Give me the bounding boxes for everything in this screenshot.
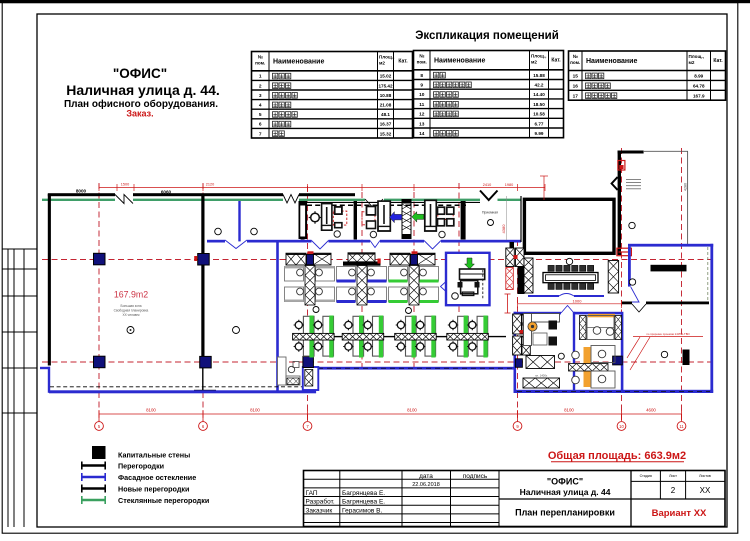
- svg-text:15.02: 15.02: [380, 74, 392, 79]
- svg-text:8100: 8100: [250, 408, 260, 413]
- svg-text:Лист: Лист: [669, 474, 677, 478]
- svg-text:Кат.: Кат.: [551, 58, 561, 64]
- svg-text:"ОФИС": "ОФИС": [113, 66, 167, 81]
- svg-text:Наименование: Наименование: [273, 59, 324, 66]
- svg-text:1500: 1500: [121, 183, 129, 187]
- svg-text:Герасимов В.: Герасимов В.: [342, 507, 382, 514]
- svg-text:42.2: 42.2: [535, 82, 544, 87]
- svg-text:пом.: пом.: [417, 60, 427, 65]
- svg-text:15: 15: [573, 74, 579, 80]
- svg-text:пом.: пом.: [255, 61, 265, 66]
- svg-text:22.06.2018: 22.06.2018: [412, 482, 440, 488]
- svg-text:Капитальные стены: Капитальные стены: [118, 451, 190, 460]
- svg-text:3: 3: [259, 93, 262, 99]
- svg-text:№: №: [258, 55, 263, 60]
- svg-text:1: 1: [259, 74, 262, 80]
- svg-text:167.9m2: 167.9m2: [114, 290, 148, 300]
- svg-text:Вариант ХХ: Вариант ХХ: [652, 508, 707, 519]
- svg-text:2410: 2410: [483, 183, 491, 187]
- svg-text:по прорезке проемов 14УРА-ТВО: по прорезке проемов 14УРА-ТВО: [646, 332, 690, 336]
- svg-text:Приемная: Приемная: [482, 211, 498, 215]
- svg-text:9.99: 9.99: [535, 131, 544, 136]
- svg-text:Стеклянные перегородки: Стеклянные перегородки: [118, 496, 209, 505]
- svg-text:14.40: 14.40: [533, 92, 545, 97]
- svg-text:21.08: 21.08: [380, 103, 392, 108]
- svg-text:подпись: подпись: [463, 473, 488, 480]
- svg-text:8.99: 8.99: [694, 74, 703, 79]
- svg-text:10.58: 10.58: [533, 112, 545, 117]
- svg-text:4600: 4600: [646, 408, 656, 413]
- svg-text:13: 13: [419, 121, 425, 127]
- svg-text:11: 11: [419, 102, 424, 108]
- svg-text:Кат.: Кат.: [713, 58, 723, 64]
- svg-text:16.37: 16.37: [380, 122, 392, 127]
- svg-text:2120: 2120: [206, 183, 214, 187]
- svg-text:11: 11: [679, 424, 684, 429]
- svg-text:9: 9: [420, 82, 423, 88]
- svg-text:План перепланировки: План перепланировки: [515, 508, 615, 518]
- svg-text:6060: 6060: [161, 190, 172, 195]
- svg-text:ХХ человек: ХХ человек: [123, 313, 141, 317]
- svg-text:8100: 8100: [407, 408, 417, 413]
- svg-text:10.88: 10.88: [380, 93, 392, 98]
- svg-text:10: 10: [619, 424, 624, 429]
- svg-text:Заказ.: Заказ.: [126, 109, 153, 119]
- svg-text:1000: 1000: [573, 299, 583, 304]
- svg-text:15.32: 15.32: [380, 131, 392, 136]
- svg-text:Наименование: Наименование: [434, 58, 485, 65]
- svg-text:18.50: 18.50: [533, 102, 545, 107]
- svg-text:"ОФИС": "ОФИС": [547, 477, 583, 487]
- svg-text:Фасадное остекление: Фасадное остекление: [118, 473, 196, 482]
- svg-text:14: 14: [419, 131, 425, 137]
- svg-text:Заказчик: Заказчик: [306, 507, 333, 514]
- svg-text:ХХ: ХХ: [700, 486, 711, 495]
- svg-text:Наличная улица д. 44.: Наличная улица д. 44.: [66, 82, 220, 98]
- svg-text:Наименование: Наименование: [586, 58, 637, 65]
- svg-text:Перегородки: Перегородки: [118, 462, 164, 471]
- svg-text:Площ.,: Площ.,: [379, 55, 394, 60]
- svg-text:8100: 8100: [146, 408, 156, 413]
- svg-text:Листов: Листов: [699, 474, 711, 478]
- svg-text:48.1: 48.1: [381, 112, 390, 117]
- svg-text:2: 2: [671, 486, 676, 495]
- svg-text:2: 2: [259, 83, 262, 89]
- svg-text:4280: 4280: [684, 183, 688, 191]
- svg-text:Багрянцева Е.: Багрянцева Е.: [342, 490, 385, 497]
- svg-text:16: 16: [573, 84, 579, 90]
- svg-text:Новые перегородки: Новые перегородки: [118, 485, 189, 494]
- svg-text:7: 7: [259, 131, 262, 137]
- svg-text:167.9: 167.9: [693, 93, 705, 98]
- svg-text:8000: 8000: [76, 189, 87, 194]
- svg-text:6.77: 6.77: [535, 121, 544, 126]
- svg-text:Наличная улица д. 44: Наличная улица д. 44: [520, 487, 611, 497]
- svg-text:Багрянцева Е.: Багрянцева Е.: [342, 499, 385, 506]
- svg-text:175.42: 175.42: [378, 83, 392, 88]
- svg-text:4380: 4380: [501, 224, 506, 234]
- svg-text:пом.: пом.: [570, 60, 580, 65]
- svg-text:пл. 1400х: пл. 1400х: [535, 374, 548, 378]
- svg-text:дата: дата: [419, 473, 433, 480]
- svg-text:№: №: [419, 54, 424, 59]
- svg-text:м2: м2: [531, 60, 537, 65]
- svg-text:8: 8: [420, 73, 423, 79]
- svg-text:6: 6: [259, 122, 262, 128]
- svg-text:ГАП: ГАП: [306, 490, 318, 497]
- svg-text:5: 5: [259, 112, 262, 118]
- svg-text:Экспликация помещений: Экспликация помещений: [415, 30, 559, 42]
- svg-text:Площ.,: Площ.,: [531, 54, 546, 59]
- svg-text:Большая зона: Большая зона: [121, 304, 142, 308]
- svg-text:Площ.,: Площ.,: [689, 54, 704, 59]
- svg-text:12: 12: [419, 112, 425, 118]
- svg-text:15.88: 15.88: [533, 73, 545, 78]
- svg-text:Разработ.: Разработ.: [306, 498, 335, 506]
- svg-text:64.78: 64.78: [693, 84, 705, 89]
- svg-text:Кат.: Кат.: [398, 59, 408, 65]
- svg-text:№: №: [573, 54, 578, 59]
- svg-text:м2: м2: [689, 60, 695, 65]
- svg-text:4: 4: [259, 103, 262, 109]
- svg-text:17: 17: [573, 93, 579, 99]
- svg-text:10: 10: [419, 92, 425, 98]
- svg-text:Общая площадь: 663.9м2: Общая площадь: 663.9м2: [548, 450, 686, 462]
- svg-text:м2: м2: [379, 61, 385, 66]
- svg-text:8100: 8100: [564, 408, 574, 413]
- svg-text:Стадия: Стадия: [640, 474, 652, 478]
- svg-text:Свободная планировка: Свободная планировка: [114, 309, 149, 313]
- svg-text:1980: 1980: [505, 183, 513, 187]
